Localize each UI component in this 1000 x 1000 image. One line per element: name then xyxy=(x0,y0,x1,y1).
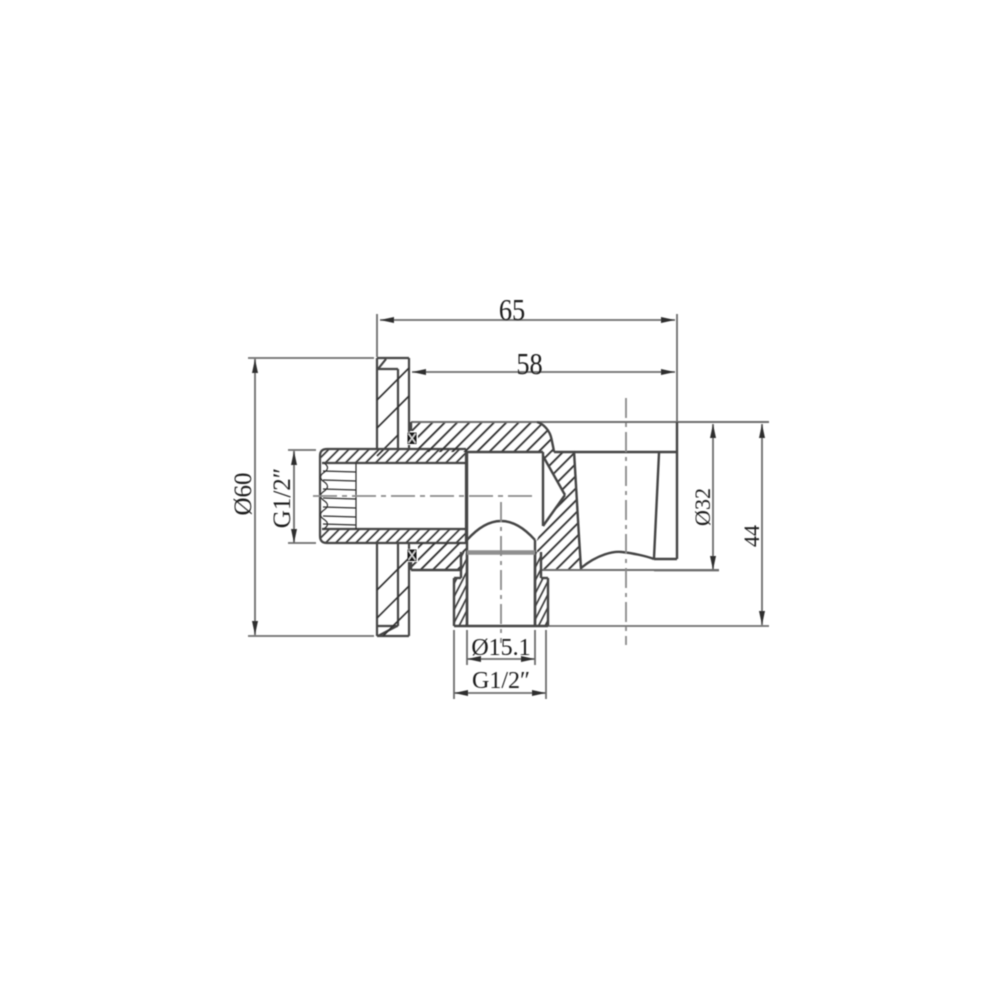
svg-text:G1/2″: G1/2″ xyxy=(269,468,296,528)
svg-text:44: 44 xyxy=(739,525,764,547)
svg-text:Ø60: Ø60 xyxy=(230,472,257,515)
svg-text:Ø32: Ø32 xyxy=(690,488,715,526)
svg-text:G1/2″: G1/2″ xyxy=(472,668,530,694)
svg-text:65: 65 xyxy=(499,293,525,327)
svg-text:58: 58 xyxy=(516,347,542,381)
